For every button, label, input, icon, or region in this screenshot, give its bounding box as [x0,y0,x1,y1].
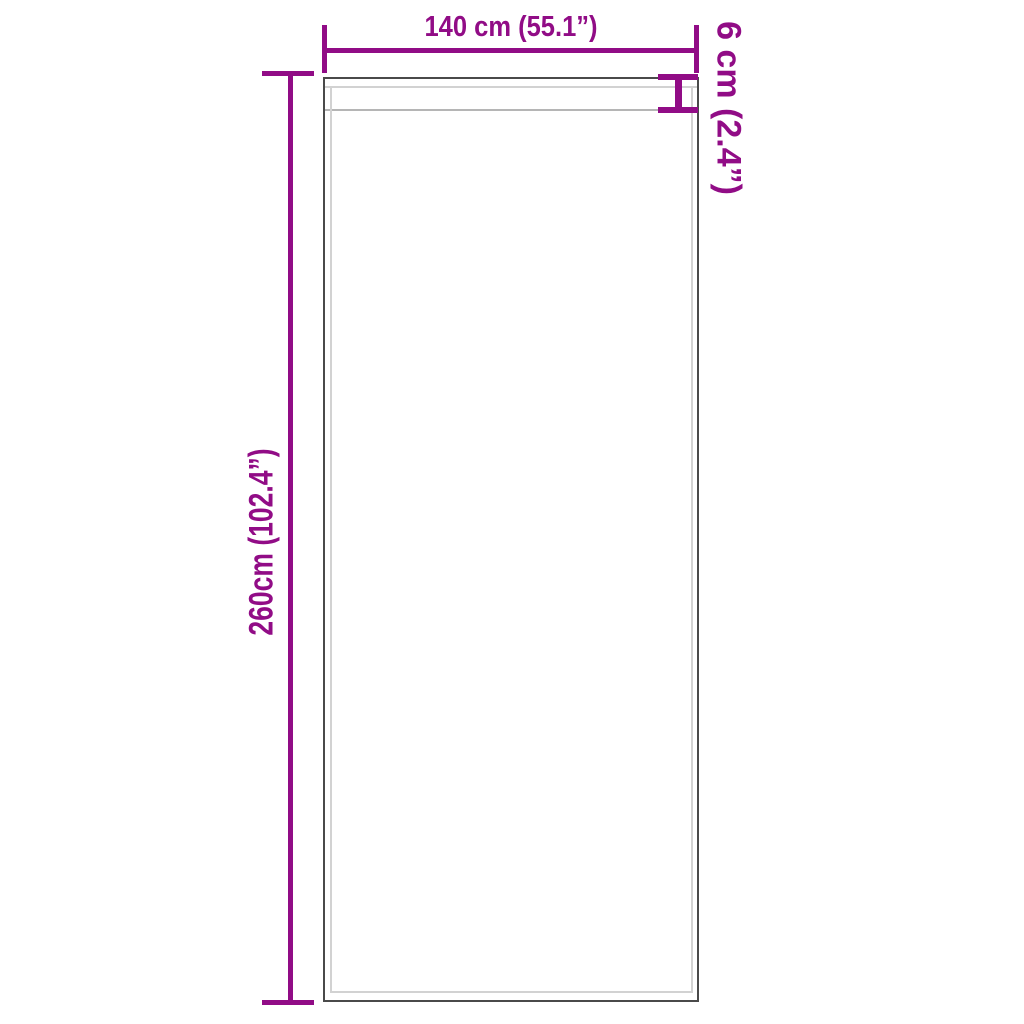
width-dimension-line [323,48,699,53]
rod-pocket-top-seam-line [325,86,697,88]
rod-pocket-bottom-seam-line [325,109,697,111]
width-dimension-left-tick [322,25,327,73]
bottom-hem-line [330,991,693,993]
width-dimension-label: 140 cm (55.1”) [424,12,597,44]
curtain-panel-outline [323,77,699,1002]
right-hem-line [691,86,693,993]
height-dimension-top-tick [262,71,314,76]
header-dimension-label: 6 cm (2.4”) [709,21,746,195]
height-dimension-bottom-tick [262,1000,314,1005]
header-bracket-bottom-tick [658,107,698,113]
width-dimension-right-tick [694,25,699,73]
left-hem-line [330,86,332,993]
dimension-diagram-canvas: 140 cm (55.1”) 6 cm (2.4”) 260cm (102.4”… [0,0,1024,1024]
height-dimension-line [288,73,293,1005]
height-dimension-label: 260cm (102.4”) [243,448,280,635]
